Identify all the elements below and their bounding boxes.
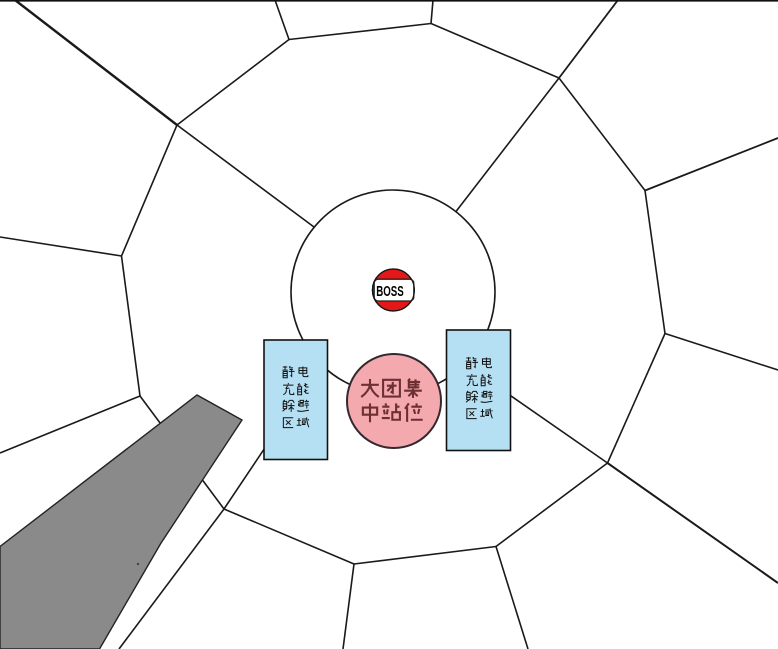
svg-text:BOSS: BOSS <box>376 284 404 300</box>
